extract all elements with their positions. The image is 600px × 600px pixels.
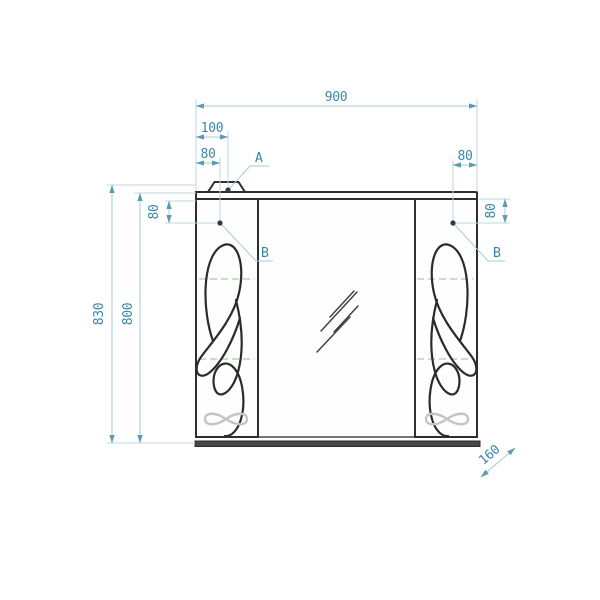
technical-drawing-mirror-cabinet: 900 100 80 80 80 80 830 800 160 A B B <box>0 0 600 600</box>
callout-hinge-b-right: B <box>493 245 501 261</box>
cabinet-front-view <box>195 182 480 447</box>
callout-hinge-b-left: B <box>261 245 269 261</box>
dim-hinge-inset-right: 80 <box>457 149 472 164</box>
drawing-svg: 900 100 80 80 80 80 830 800 160 A B B <box>0 0 600 600</box>
lamp-reference-dot <box>225 187 230 192</box>
mirror-panel <box>258 199 415 437</box>
dim-hinge-inset-left: 80 <box>200 147 215 162</box>
hinge-dot-left <box>217 220 222 225</box>
dim-overall-height: 830 <box>92 303 107 326</box>
cabinet-bottom-plinth <box>195 441 480 447</box>
dim-body-height: 800 <box>121 303 136 326</box>
right-door <box>415 199 477 437</box>
dim-hinge-drop-left: 80 <box>147 204 162 219</box>
dim-overall-width: 900 <box>325 90 348 105</box>
callout-lamp-a: A <box>255 150 263 166</box>
dim-lamp-offset: 100 <box>201 121 224 136</box>
hinge-dot-right <box>450 220 455 225</box>
cabinet-top-panel <box>196 192 477 199</box>
left-door <box>196 199 258 437</box>
dim-hinge-drop-right: 80 <box>484 203 499 218</box>
